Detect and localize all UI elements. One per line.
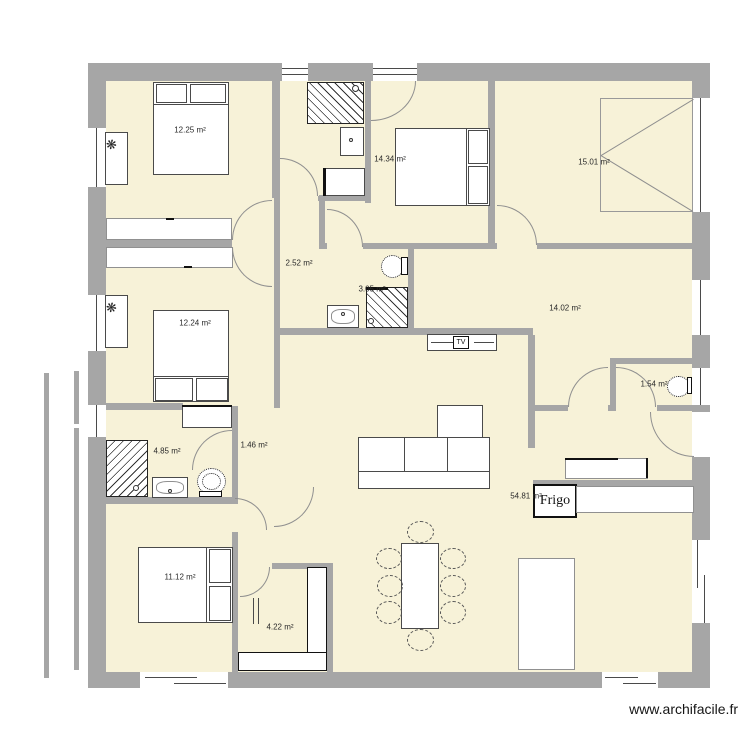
window-glass bbox=[282, 68, 308, 69]
wardrobe bbox=[106, 218, 232, 240]
room-label-wc: 1.54 m² bbox=[640, 380, 667, 389]
chair bbox=[407, 521, 434, 543]
tv-cabinet-line bbox=[474, 342, 494, 343]
chair bbox=[377, 575, 403, 597]
room-label-bedroom-4: 11.12 m² bbox=[165, 573, 196, 582]
wall bbox=[327, 563, 333, 672]
window-glass bbox=[373, 68, 417, 69]
shower-head bbox=[352, 85, 359, 92]
window-glass bbox=[373, 74, 417, 75]
wall bbox=[106, 240, 232, 247]
window-glass bbox=[282, 74, 308, 75]
kitchen-island bbox=[518, 558, 575, 670]
chair bbox=[376, 601, 402, 624]
tv-cabinet-line bbox=[431, 342, 453, 343]
chair bbox=[440, 575, 466, 597]
room-label-bathroom: 4.85 m² bbox=[153, 447, 180, 456]
pillow bbox=[156, 84, 187, 103]
room-label-living-kitchen: 54.81 m² bbox=[510, 492, 542, 501]
sofa-cushion-line bbox=[359, 471, 489, 472]
fence-wall bbox=[74, 371, 79, 424]
wall bbox=[232, 406, 238, 498]
wall bbox=[319, 243, 327, 249]
wall bbox=[535, 405, 568, 411]
wardrobe bbox=[106, 247, 233, 268]
window-glass bbox=[96, 405, 97, 437]
toilet-tank bbox=[401, 257, 408, 275]
bed-line bbox=[153, 104, 229, 105]
faucet bbox=[341, 312, 345, 316]
wall bbox=[657, 405, 694, 411]
sofa bbox=[358, 437, 490, 489]
window-glass bbox=[174, 683, 226, 684]
window-glass bbox=[697, 540, 698, 588]
shower-head bbox=[368, 318, 374, 324]
closet bbox=[238, 652, 327, 671]
shelf-line bbox=[253, 598, 254, 624]
kitchen-counter bbox=[565, 458, 648, 479]
toilet-seat bbox=[202, 473, 221, 490]
closet bbox=[307, 567, 327, 653]
wall bbox=[408, 243, 414, 335]
fridge: Frigo bbox=[533, 484, 577, 518]
sofa-chaise bbox=[437, 405, 483, 439]
window bbox=[692, 98, 710, 212]
pillow bbox=[468, 130, 488, 164]
sliding-door bbox=[692, 540, 710, 623]
chair bbox=[376, 548, 402, 569]
shelf-line bbox=[258, 598, 259, 624]
pillow bbox=[190, 84, 226, 103]
window-glass bbox=[700, 280, 701, 335]
wall bbox=[274, 195, 280, 408]
sliding-door bbox=[602, 672, 658, 688]
wall bbox=[610, 358, 694, 364]
pillow bbox=[468, 166, 488, 204]
room-label-master-bedroom: 14.02 m² bbox=[549, 304, 581, 313]
shower-head bbox=[133, 485, 139, 491]
pillow bbox=[209, 586, 231, 621]
room-label-hallway: 2.52 m² bbox=[285, 259, 312, 268]
tv: TV bbox=[453, 336, 469, 349]
room-label-hall-2: 1.46 m² bbox=[240, 441, 267, 450]
chair bbox=[440, 548, 466, 569]
wall bbox=[318, 196, 365, 201]
washing-machine-edge bbox=[323, 168, 326, 196]
bed-line bbox=[466, 128, 467, 206]
front-door-opening bbox=[692, 412, 710, 457]
toilet-tank bbox=[199, 491, 222, 497]
wall bbox=[106, 403, 183, 410]
chair bbox=[407, 629, 434, 651]
room-label-bedroom-1: 12.25 m² bbox=[174, 126, 206, 135]
sliding-door bbox=[140, 672, 228, 688]
fence-wall bbox=[74, 428, 79, 670]
window-glass bbox=[145, 677, 197, 678]
room-label-bedroom-2: 12.24 m² bbox=[179, 319, 211, 328]
window-glass bbox=[623, 683, 656, 684]
window bbox=[692, 368, 710, 405]
window-glass bbox=[96, 128, 97, 187]
chair bbox=[440, 601, 466, 624]
wall bbox=[272, 81, 280, 198]
wall bbox=[528, 335, 535, 448]
wall bbox=[319, 195, 325, 247]
window-glass bbox=[700, 98, 701, 212]
counter-edge bbox=[646, 458, 648, 478]
sofa-cushion-line bbox=[447, 438, 448, 471]
room-label-bedroom-3: 14.34 m² bbox=[374, 155, 406, 164]
window-glass bbox=[700, 368, 701, 405]
washing-machine bbox=[323, 168, 365, 196]
wall bbox=[106, 497, 238, 504]
fence-wall bbox=[44, 373, 49, 678]
window bbox=[692, 280, 710, 335]
dining-table bbox=[401, 543, 439, 629]
bed-line bbox=[153, 376, 229, 377]
room-label-garage: 15.01 m² bbox=[578, 158, 610, 167]
bed-line bbox=[206, 547, 207, 623]
shower bbox=[106, 440, 148, 497]
window-glass bbox=[605, 677, 638, 678]
wardrobe-mark bbox=[184, 266, 192, 268]
wardrobe-mark bbox=[182, 405, 232, 407]
wall bbox=[608, 405, 616, 411]
garage-door-symbol bbox=[600, 98, 693, 212]
wardrobe-mark bbox=[166, 218, 174, 220]
entry-door-opening bbox=[373, 63, 417, 81]
wardrobe bbox=[182, 405, 232, 428]
floor-plan: ❋ ❋ TV Frigo bbox=[0, 0, 750, 750]
kitchen-counter bbox=[576, 486, 694, 513]
faucet bbox=[349, 138, 353, 142]
faucet bbox=[168, 489, 172, 493]
room-label-shower-room: 3.05 m² bbox=[358, 285, 385, 294]
toilet-tank bbox=[687, 377, 692, 394]
wall bbox=[537, 243, 694, 249]
counter-edge bbox=[565, 458, 618, 460]
pillow bbox=[155, 378, 193, 401]
window bbox=[88, 128, 106, 187]
pillow bbox=[209, 549, 231, 583]
pillow bbox=[196, 378, 228, 401]
window-glass bbox=[704, 575, 705, 623]
window bbox=[88, 405, 106, 437]
room-label-storage: 4.22 m² bbox=[266, 623, 293, 632]
window-glass bbox=[96, 295, 97, 351]
wall bbox=[363, 243, 497, 249]
sofa-cushion-line bbox=[404, 438, 405, 471]
watermark: www.archifacile.fr bbox=[629, 701, 738, 717]
window bbox=[282, 63, 308, 81]
